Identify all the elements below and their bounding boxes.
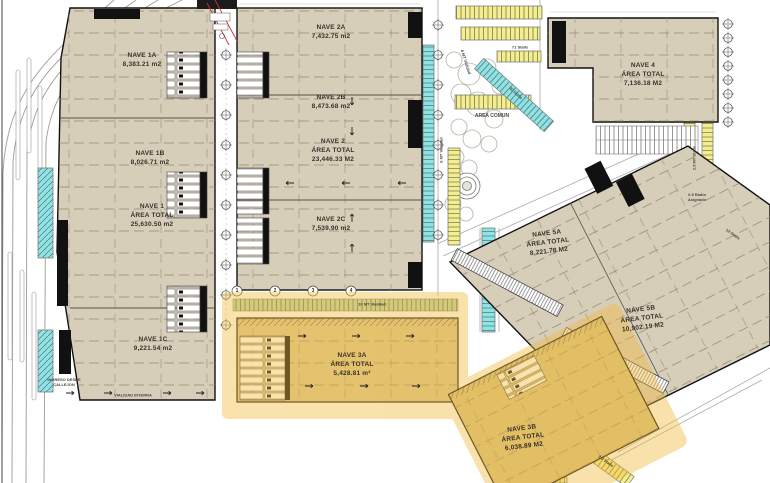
parking-cyan-nave2 [423, 45, 434, 242]
core-block [57, 220, 68, 306]
parking-yellow-mid [448, 148, 460, 245]
core-block [94, 9, 140, 19]
nave-2-building [237, 8, 422, 290]
core-block [408, 262, 422, 288]
site-plan-drawing [0, 0, 770, 483]
core-block [408, 12, 422, 38]
site-plan: NAVE 1A 8,383.21 m2 NAVE 1B 8,026.71 m2 … [0, 0, 770, 483]
nave-1-loading-docks [167, 52, 207, 332]
core-block [59, 330, 71, 374]
core-block [408, 100, 422, 148]
grid-bubbles-nave4 [722, 18, 734, 128]
core-block [552, 21, 566, 63]
nave-1-building [55, 6, 217, 402]
highlight-overlay-nave3 [222, 292, 689, 483]
